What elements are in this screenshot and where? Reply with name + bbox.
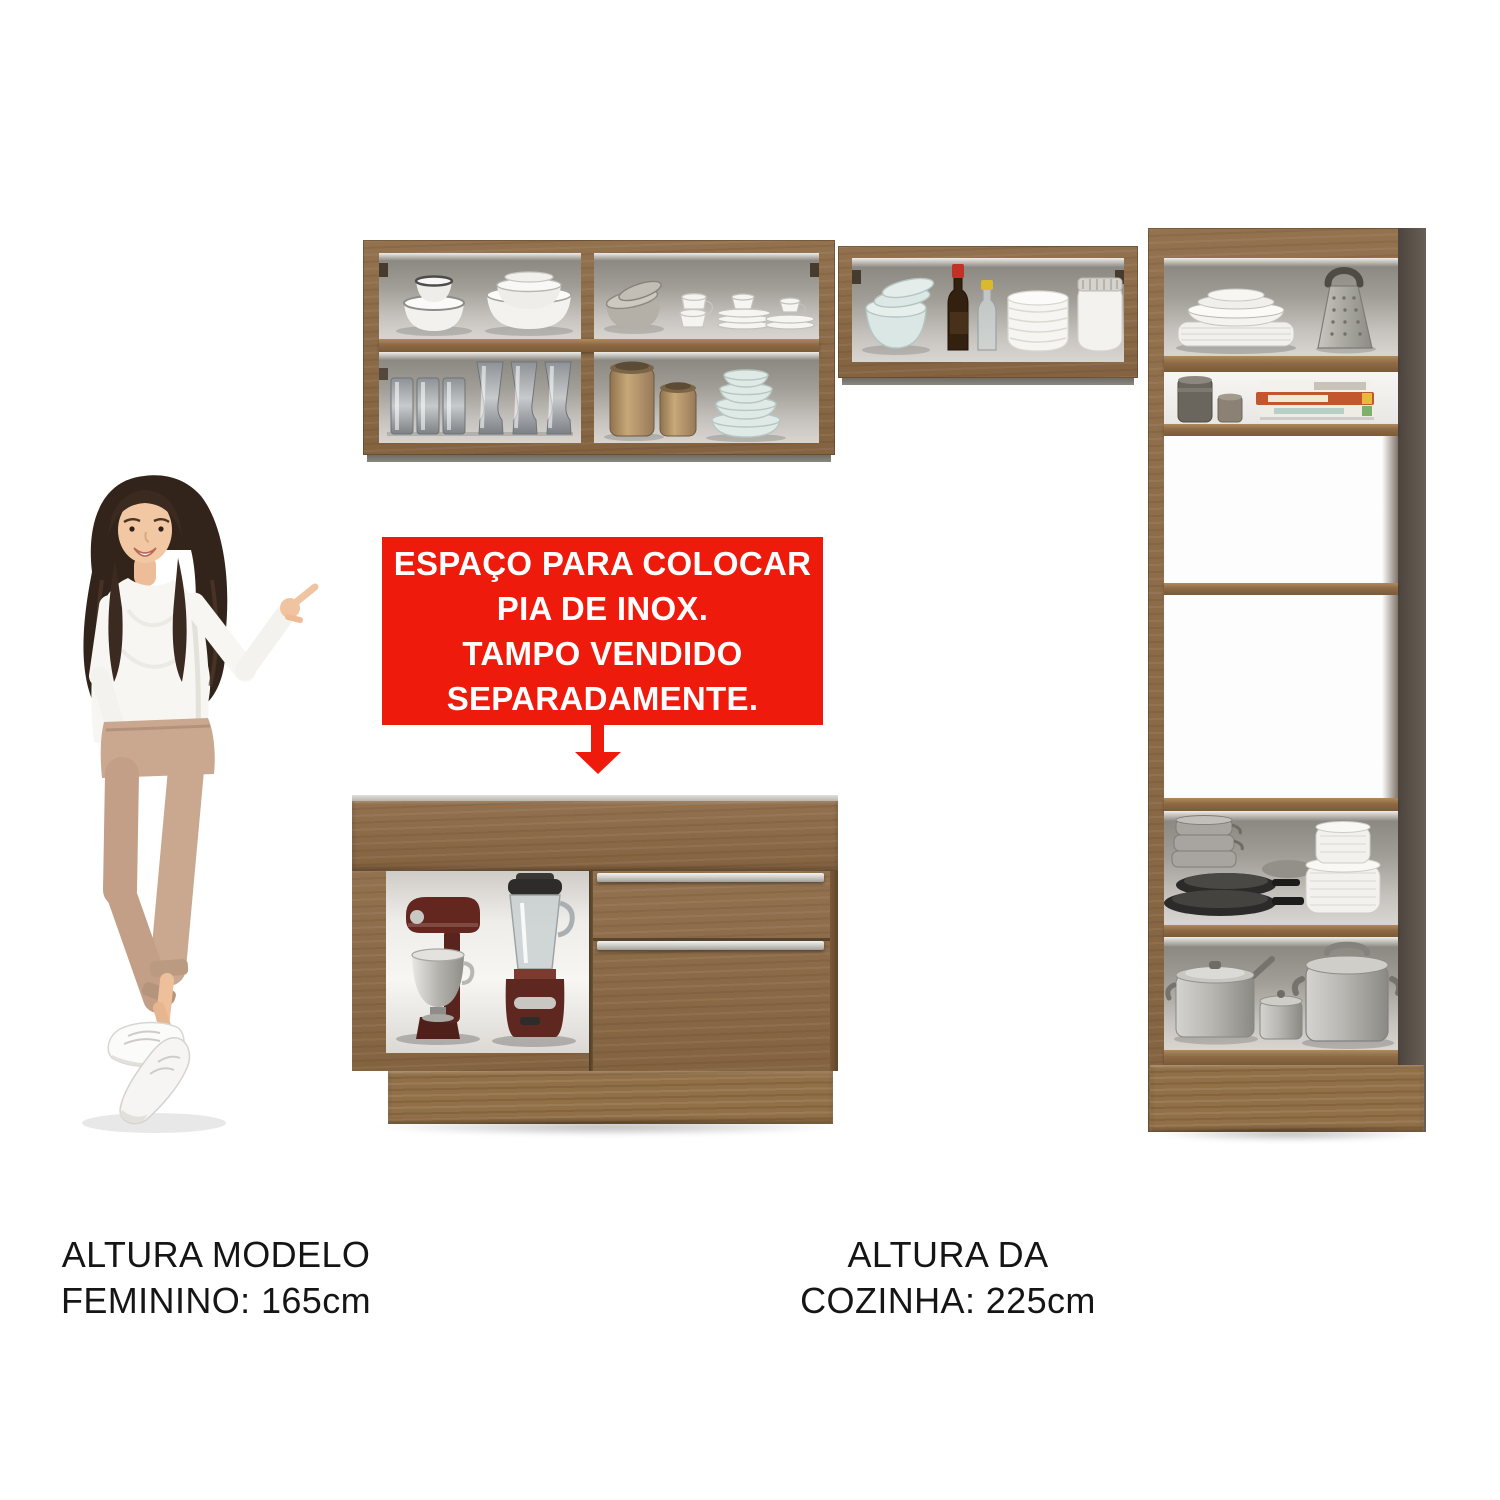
hinge (379, 263, 388, 277)
tall-compartment-empty-1 (1164, 436, 1398, 583)
tall-cabinet-shelf (1164, 798, 1398, 811)
white-bowl-stack (1008, 291, 1068, 351)
base-cabinet-body (352, 871, 838, 1071)
tall-compartment-empty-2 (1164, 595, 1398, 798)
model-sneakers (108, 1023, 189, 1124)
callout-line: ESPAÇO PARA COLOCAR (394, 541, 812, 586)
tilted-blue-bowls (866, 275, 935, 348)
product-image: ESPAÇO PARA COLOCAR PIA DE INOX. TAMPO V… (0, 0, 1500, 1500)
female-model-photo (62, 470, 322, 1140)
thermos-canister (1178, 376, 1242, 422)
wall-cabinet-center (838, 246, 1138, 378)
clear-bottle (978, 280, 996, 350)
wall-left-compartment-bottom-right (594, 352, 819, 443)
white-plate-stacks (1306, 822, 1380, 914)
tall-compartment-pans (1164, 811, 1398, 925)
blender (492, 873, 576, 1047)
tall-pantry-cabinet (1148, 228, 1426, 1132)
tall-compartment-plates (1164, 258, 1398, 356)
callout-line: SEPARADAMENTE. (447, 676, 759, 721)
drawer-handle (597, 873, 824, 882)
pans-and-plates (1164, 811, 1398, 925)
hinge (810, 263, 819, 277)
metal-pot-stack (1172, 816, 1242, 868)
side-shade (1382, 436, 1398, 583)
tall-cabinet-bottom-band (1164, 1050, 1398, 1065)
base-cabinet-apron (352, 801, 838, 871)
dark-bottle (948, 264, 968, 350)
drinking-glasses (379, 352, 581, 443)
wall-cabinet-left-underside (367, 455, 831, 462)
wall-left-compartment-bottom-left (379, 352, 581, 443)
tall-cabinet-side-panel (1398, 228, 1426, 1132)
kitchen-height-caption: ALTURA DA COZINHA: 225cm (768, 1232, 1128, 1324)
door-handle (597, 941, 824, 950)
model-pointing-hand (280, 587, 315, 620)
bottles-bowls-jar (852, 258, 1124, 362)
canister-and-books (1164, 372, 1398, 424)
wall-center-compartment (852, 258, 1124, 362)
mason-jar (1078, 278, 1122, 351)
model-shadow (82, 1113, 226, 1133)
model-height-line1: ALTURA MODELO (36, 1232, 396, 1278)
tall-compartment-books (1164, 372, 1398, 424)
base-cabinet-plinth (388, 1071, 833, 1124)
hinge (852, 270, 861, 284)
tall-cabinet-floor-shadow (1155, 1126, 1423, 1142)
grater (1316, 271, 1376, 354)
tall-cabinet-plinth (1150, 1065, 1424, 1132)
tall-cabinet-shelf (1164, 356, 1398, 372)
medium-pot (1168, 959, 1272, 1037)
black-frying-pans (1164, 873, 1304, 916)
callout-line: PIA DE INOX. (497, 586, 708, 631)
appliances (386, 871, 589, 1053)
hinge (379, 368, 388, 380)
down-arrow-icon (591, 723, 604, 754)
tall-cabinet-shelf (1164, 424, 1398, 436)
kitchen-height-line1: ALTURA DA (768, 1232, 1128, 1278)
side-shade (1382, 595, 1398, 798)
model-height-caption: ALTURA MODELO FEMININO: 165cm (36, 1232, 396, 1324)
kitchen-height-line2: COZINHA: 225cm (768, 1278, 1128, 1324)
cups-and-saucers (594, 253, 819, 339)
model-height-line2: FEMININO: 165cm (36, 1278, 396, 1324)
wall-left-shelf (379, 339, 819, 352)
plates-and-grater (1164, 258, 1398, 356)
model-trousers (101, 718, 215, 1005)
small-pot (1260, 990, 1302, 1039)
book-stack (1256, 380, 1374, 420)
plate-stack (1178, 289, 1294, 346)
base-cabinet-floor-shadow (372, 1118, 838, 1136)
wall-left-compartment-top-left (379, 253, 581, 339)
steel-pots (1164, 937, 1398, 1050)
wall-cabinet-center-underside (842, 378, 1134, 385)
stand-mixer (396, 897, 480, 1045)
base-open-compartment (386, 871, 589, 1053)
stock-pot (1295, 945, 1398, 1041)
sink-base-cabinet (352, 795, 838, 1125)
tall-cabinet-shelf (1164, 583, 1398, 595)
base-cabinet-seam (589, 871, 593, 1071)
tall-compartment-pots (1164, 937, 1398, 1050)
callout-note: ESPAÇO PARA COLOCAR PIA DE INOX. TAMPO V… (382, 537, 823, 725)
white-bowls (379, 253, 581, 339)
callout-line: TAMPO VENDIDO (462, 631, 742, 676)
down-arrow-icon (575, 752, 621, 774)
canisters-and-blue-bowls (594, 352, 819, 443)
wall-left-compartment-top-right (594, 253, 819, 339)
tall-cabinet-shelf (1164, 925, 1398, 937)
base-cabinet-right-edge (830, 871, 838, 1071)
wall-cabinet-left (363, 240, 835, 455)
